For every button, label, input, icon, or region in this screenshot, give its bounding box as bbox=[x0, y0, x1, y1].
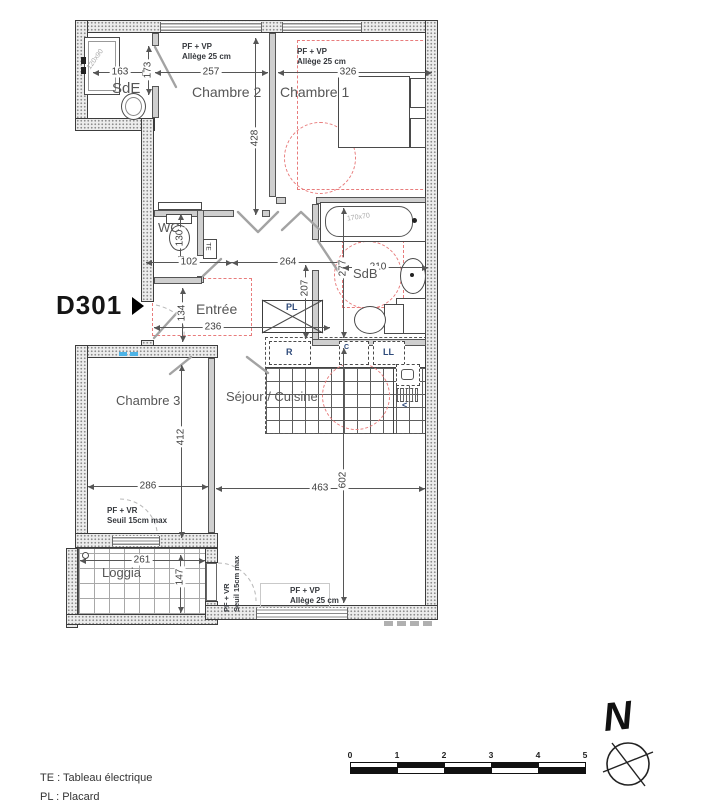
dim-label-463: 463 bbox=[310, 483, 331, 494]
scalebar-segment bbox=[444, 767, 492, 774]
sdb-toilet-cistern bbox=[384, 304, 404, 334]
dim-label-412: 412 bbox=[176, 427, 187, 448]
annotation-window-chambre2: PF + VP Allège 25 cm bbox=[182, 42, 231, 63]
vent-dash bbox=[397, 621, 406, 626]
window-chambre3-loggia bbox=[112, 536, 160, 546]
annotation-window-chambre3: PF + VR Seuil 15cm max bbox=[107, 506, 167, 527]
annotation-window-chambre1: PF + VP Allège 25 cm bbox=[297, 47, 346, 68]
room-label-sde: SdE bbox=[112, 80, 140, 97]
compass-rose: N bbox=[601, 693, 653, 786]
room-label-chambre1: Chambre 1 bbox=[280, 84, 349, 100]
annotation-line: PF + VP bbox=[290, 586, 339, 596]
room-label-chambre3: Chambre 3 bbox=[116, 393, 180, 408]
legend-pl: PL : Placard bbox=[40, 791, 100, 800]
dim-label-428: 428 bbox=[250, 128, 261, 149]
scalebar-segment bbox=[350, 767, 398, 774]
annotation-line: Allège 25 cm bbox=[290, 596, 339, 606]
blue-mark bbox=[130, 352, 138, 356]
annotation-line: PF + VR bbox=[107, 506, 167, 516]
kitchen-sink-bowl bbox=[401, 369, 414, 380]
annotation-loggia-door: PF + VR Seuil 15cm max bbox=[222, 556, 242, 612]
scalebar-segment bbox=[538, 767, 586, 774]
room-label-loggia: Loggia bbox=[102, 565, 141, 580]
scalebar-tick-0: 0 bbox=[348, 750, 353, 760]
room-label-sejour: Séjour / Cuisine bbox=[226, 389, 318, 404]
interior-wall-sde-right-a bbox=[152, 33, 159, 46]
interior-wall-ch2-bottom-b bbox=[262, 210, 270, 217]
blue-mark bbox=[119, 352, 127, 356]
scalebar-tick-4: 4 bbox=[536, 750, 541, 760]
exterior-wall-loggia-bottom bbox=[66, 614, 218, 625]
interior-wall-sde-right-b bbox=[152, 86, 159, 118]
dim-label-147: 147 bbox=[175, 567, 186, 588]
room-label-wc: WC bbox=[158, 220, 180, 235]
window-sejour bbox=[256, 608, 348, 619]
red-circle-kitchen bbox=[322, 362, 390, 430]
vent-dash bbox=[423, 621, 432, 626]
vent-dash bbox=[410, 621, 419, 626]
scalebar-segment bbox=[397, 767, 445, 774]
annotation-window-sejour: PF + VP Allège 25 cm bbox=[290, 586, 339, 607]
dim-label-163: 163 bbox=[110, 67, 131, 78]
annotation-line: Seuil 15cm max bbox=[107, 516, 167, 526]
annotation-line: Allège 25 cm bbox=[297, 57, 346, 67]
wall-chambre3-top bbox=[75, 345, 218, 358]
kitchen-counter-edge-vertical bbox=[393, 368, 394, 434]
electrical-panel-label: TE bbox=[205, 242, 212, 250]
scalebar-segment bbox=[491, 767, 539, 774]
window-chambre1 bbox=[282, 22, 362, 32]
dim-line bbox=[154, 327, 330, 328]
dim-label-326: 326 bbox=[338, 67, 359, 78]
dim-line bbox=[181, 365, 182, 538]
dim-label-602: 602 bbox=[338, 470, 349, 491]
dim-label-236: 236 bbox=[203, 322, 224, 333]
scalebar-tick-5: 5 bbox=[583, 750, 588, 760]
room-label-entree: Entrée bbox=[196, 301, 237, 317]
exterior-wall-right bbox=[425, 20, 438, 620]
fridge-label: R bbox=[286, 347, 293, 357]
scalebar-tick-2: 2 bbox=[442, 750, 447, 760]
dim-line bbox=[255, 38, 256, 215]
window-chambre2 bbox=[160, 22, 262, 32]
dim-label-261: 261 bbox=[132, 555, 153, 566]
interior-wall-wc-bottom bbox=[154, 277, 202, 284]
interior-wall-ch3-right bbox=[208, 358, 215, 533]
nightstand bbox=[410, 78, 426, 108]
vent-dash bbox=[384, 621, 393, 626]
dim-label-257: 257 bbox=[201, 67, 222, 78]
annotation-line: PF + VP bbox=[182, 42, 231, 52]
closet-pl-label: PL bbox=[285, 302, 299, 312]
dim-label-207: 207 bbox=[300, 278, 311, 299]
kitchen-vent-mark: < bbox=[402, 400, 407, 410]
wall-sejour-left-upper bbox=[205, 548, 218, 563]
annotation-line: PF + VR bbox=[222, 556, 232, 612]
bathtub-inner bbox=[325, 206, 413, 237]
dim-label-102: 102 bbox=[179, 257, 200, 268]
unit-number: D301 bbox=[56, 290, 122, 321]
entry-arrow-icon bbox=[132, 297, 144, 315]
exterior-wall-chambre3-left bbox=[75, 345, 88, 548]
shower-control bbox=[81, 67, 86, 74]
annotation-line: Seuil 15cm max bbox=[232, 556, 242, 612]
room-label-sdb: SdB bbox=[352, 266, 379, 281]
sdb-washbasin-drain bbox=[410, 273, 414, 277]
scalebar-tick-3: 3 bbox=[489, 750, 494, 760]
nightstand bbox=[410, 118, 426, 148]
annotation-line: PF + VP bbox=[297, 47, 346, 57]
interior-wall-sdb-left-a bbox=[312, 204, 319, 240]
sdb-toilet-bowl bbox=[354, 306, 386, 334]
annotation-line: Allège 25 cm bbox=[182, 52, 231, 62]
interior-wall-ch2-ch1 bbox=[269, 33, 276, 197]
wc-shelf bbox=[158, 202, 202, 210]
bathtub-faucet bbox=[412, 218, 417, 223]
scalebar-tick-1: 1 bbox=[395, 750, 400, 760]
room-label-chambre2: Chambre 2 bbox=[192, 84, 261, 100]
compass-north-label: N bbox=[601, 693, 635, 740]
dim-label-134: 134 bbox=[177, 303, 188, 324]
washer-label: LL bbox=[383, 347, 394, 357]
loggia-door-panel bbox=[206, 563, 217, 601]
sde-washbasin-bowl bbox=[125, 97, 142, 116]
floor-plan-page: N 120x90 TE 170x70 PL R C LL < bbox=[0, 0, 710, 800]
exterior-wall-corridor-left bbox=[141, 118, 154, 302]
dim-label-264: 264 bbox=[278, 257, 299, 268]
interior-wall-ch1-bottom-a bbox=[276, 197, 286, 204]
dim-label-173: 173 bbox=[143, 60, 154, 81]
legend-te: TE : Tableau électrique bbox=[40, 772, 152, 784]
shower-control bbox=[81, 57, 86, 64]
dim-label-286: 286 bbox=[138, 481, 159, 492]
interior-wall-sdb-bottom bbox=[312, 339, 426, 346]
